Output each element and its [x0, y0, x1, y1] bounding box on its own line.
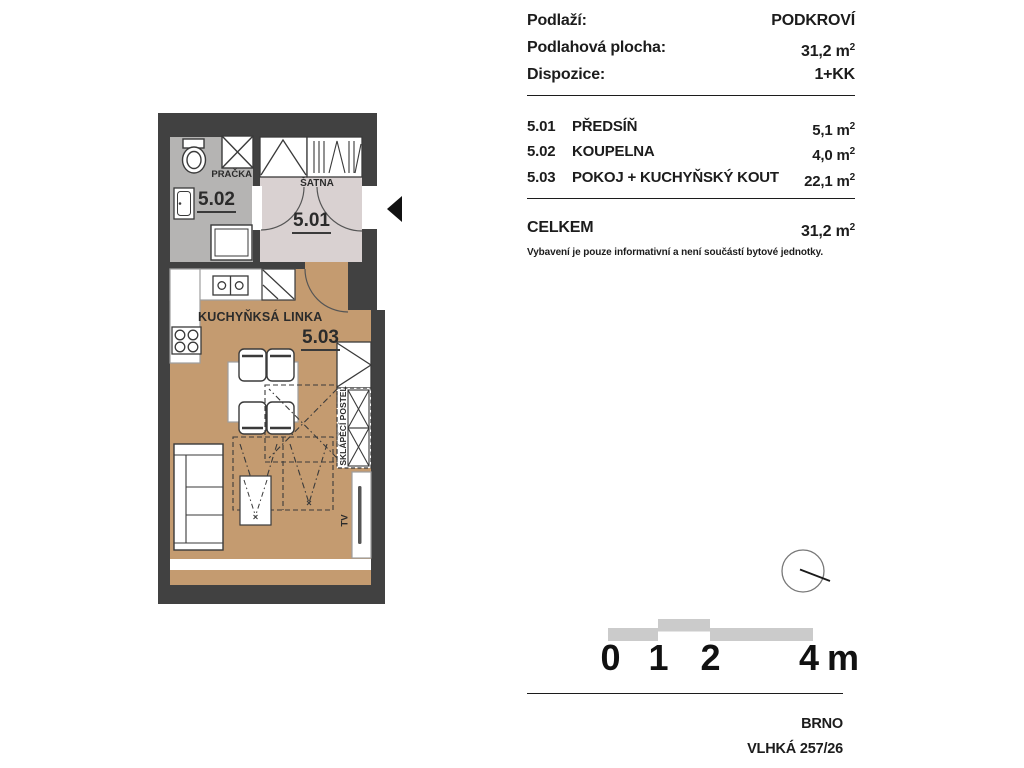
wardrobe-icon — [260, 137, 362, 177]
floor-row: Podlaží: PODKROVÍ — [527, 11, 855, 31]
pracka-label: PRAČKA — [190, 169, 252, 180]
room-area: 22,1 m — [804, 173, 850, 190]
scale-tick-0: 0 — [598, 640, 622, 676]
layout-value: 1+KK — [814, 65, 855, 85]
layout-label: Dispozice: — [527, 65, 605, 85]
area-label: Podlahová plocha: — [527, 38, 666, 58]
door-gap-floor — [305, 262, 348, 270]
room-area: 4,0 m — [812, 147, 849, 164]
area-row: Podlahová plocha: 31,2 m2 — [527, 38, 855, 58]
room-code: 5.01 — [527, 117, 555, 136]
total-label: CELKEM — [527, 218, 593, 238]
cooktop-icon — [172, 327, 201, 354]
shower-icon — [211, 225, 252, 260]
knee-wall-strip — [170, 559, 371, 570]
bathroom-door-opening — [252, 186, 262, 230]
divider-top — [527, 95, 855, 96]
layout-row: Dispozice: 1+KK — [527, 65, 855, 85]
floorplan-page: { "header": { "floor_label": "Podlaží:",… — [0, 0, 1024, 768]
room-row-502: 5.02 KOUPELNA 4,0 m2 — [527, 142, 855, 161]
room-code: 5.02 — [527, 142, 555, 161]
kitchen-sink-icon — [213, 276, 248, 295]
sofa-icon — [174, 444, 223, 550]
washing-machine-icon — [222, 136, 253, 168]
room-name: KOUPELNA — [572, 142, 655, 161]
floor-value: PODKROVÍ — [771, 11, 855, 31]
footer-city: BRNO — [527, 716, 843, 732]
room-name: PŘEDSÍŇ — [572, 117, 637, 136]
room-501-number: 5.01 — [292, 211, 331, 234]
room-area: 5,1 m — [812, 122, 849, 139]
room-502-number: 5.02 — [197, 190, 236, 213]
area-sup: 2 — [850, 42, 855, 53]
area-value: 31,2 m — [801, 43, 850, 60]
entrance-door-opening — [362, 186, 377, 229]
tv-label: TV — [340, 501, 351, 541]
washbasin-icon — [174, 188, 194, 219]
total-value: 31,2 m — [801, 223, 850, 240]
tv-cabinet — [352, 472, 371, 558]
room-code: 5.03 — [527, 168, 555, 187]
divider-footer — [527, 693, 843, 694]
room-wardrobe-icon — [337, 342, 371, 388]
floorplan-drawing — [140, 100, 420, 640]
scale-tick-1: 1 — [646, 640, 670, 676]
north-indicator-icon — [782, 550, 830, 592]
fold-bed-label: SKLÁPĚCÍ POSTEL — [338, 386, 348, 466]
footer-address: VLHKÁ 257/26 — [527, 741, 843, 757]
disclaimer-note: Vybavení je pouze informativní a není so… — [527, 247, 823, 258]
divider-middle — [527, 198, 855, 199]
scale-tick-4m: 4 m — [799, 640, 858, 676]
total-row: CELKEM 31,2 m2 — [527, 218, 855, 238]
floor-label: Podlaží: — [527, 11, 587, 31]
entrance-arrow-icon — [387, 196, 402, 222]
room-row-501: 5.01 PŘEDSÍŇ 5,1 m2 — [527, 117, 855, 136]
toilet-icon — [183, 139, 206, 173]
room-503-number: 5.03 — [301, 328, 340, 351]
kitchen-line-label: KUCHYŇKSÁ LINKA — [198, 310, 323, 324]
satna-label: ŠATNA — [293, 178, 341, 189]
room-name: POKOJ + KUCHYŇSKÝ KOUT — [572, 168, 779, 187]
scale-tick-2: 2 — [698, 640, 722, 676]
fridge-icon — [262, 269, 295, 300]
room-row-503: 5.03 POKOJ + KUCHYŇSKÝ KOUT 22,1 m2 — [527, 168, 855, 187]
bed-front-panel — [240, 476, 271, 525]
